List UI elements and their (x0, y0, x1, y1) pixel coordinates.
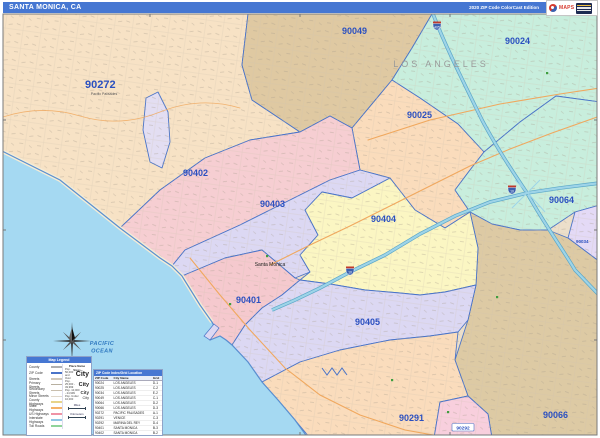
svg-text:10: 10 (348, 270, 352, 274)
zip-label-90025: 90025 (407, 110, 432, 120)
ocean-label-line1: PACIFIC (90, 341, 115, 347)
legend-line-types: County ZIP Code Streets Primary Streets … (29, 364, 62, 429)
interstate-shield-405: 405 (433, 22, 441, 31)
ocean-label-line2: OCEAN (91, 349, 113, 355)
zip-label-90402: 90402 (183, 168, 208, 178)
place-name-class: Pop. 25,000 - 49,999City (65, 380, 89, 389)
legend-swatch (51, 413, 62, 415)
logo-brand-text: MAPS (559, 5, 574, 11)
city-label-los-angeles: LOS ANGELES (393, 59, 489, 69)
legend-swatch (51, 372, 62, 374)
scale-bar-miles: Miles (65, 403, 89, 410)
legend-swatch (51, 419, 62, 421)
city-label-pacific-palisades: Pacific Palisades (91, 92, 118, 96)
publisher-logo: MAPS (546, 0, 598, 16)
legend-swatch (51, 396, 62, 398)
place-name-class: Pop. 50,000 and OverCity (65, 368, 89, 380)
zip-label-90064: 90064 (549, 195, 574, 205)
legend-swatch (51, 401, 62, 403)
zip-label-90272: 90272 (85, 79, 116, 91)
zip-label-90066: 90066 (543, 410, 568, 420)
map-title: SANTA MONICA, CA (9, 4, 81, 11)
zip-label-90024: 90024 (505, 36, 530, 46)
svg-text:10: 10 (510, 189, 514, 193)
legend-swatch (51, 390, 62, 392)
zip-label-90405: 90405 (355, 317, 380, 327)
legend-swatch (51, 425, 62, 427)
svg-text:405: 405 (434, 25, 440, 29)
globe-icon (549, 4, 557, 12)
zip-label-90401: 90401 (236, 295, 261, 305)
scale-bar-kilometers: Kilometers (65, 412, 89, 419)
zip-code-index: ZIP Code Index/Grid Location ZIP Code Ci… (93, 369, 163, 436)
zip-label-90292: 90292 (456, 426, 470, 432)
title-bar: SANTA MONICA, CA 2020 ZIP Code ColorCast… (3, 2, 597, 13)
zip-label-90404: 90404 (371, 214, 396, 224)
legend-item: Toll Roads (29, 423, 62, 429)
legend-place-names: Place Name Sizes Pop. 50,000 and OverCit… (62, 364, 89, 429)
map-legend: Map Legend County ZIP Code Streets Prima… (26, 356, 92, 436)
logo-badge (576, 3, 592, 14)
edition-label: 2020 ZIP Code ColorCast Edition (469, 5, 539, 10)
legend-swatch (51, 366, 62, 368)
legend-swatch (51, 378, 62, 380)
zip-label-90403: 90403 (260, 199, 285, 209)
legend-swatch (51, 407, 62, 409)
legend-swatch (51, 384, 62, 386)
zip-label-90034: 90034 (576, 239, 589, 244)
zip-label-90049: 90049 (342, 26, 367, 36)
place-name-class: Pop. Under 10,000City (65, 395, 89, 401)
zip-label-90291: 90291 (399, 413, 424, 423)
city-label-santa-monica: Santa Monica (255, 262, 286, 268)
